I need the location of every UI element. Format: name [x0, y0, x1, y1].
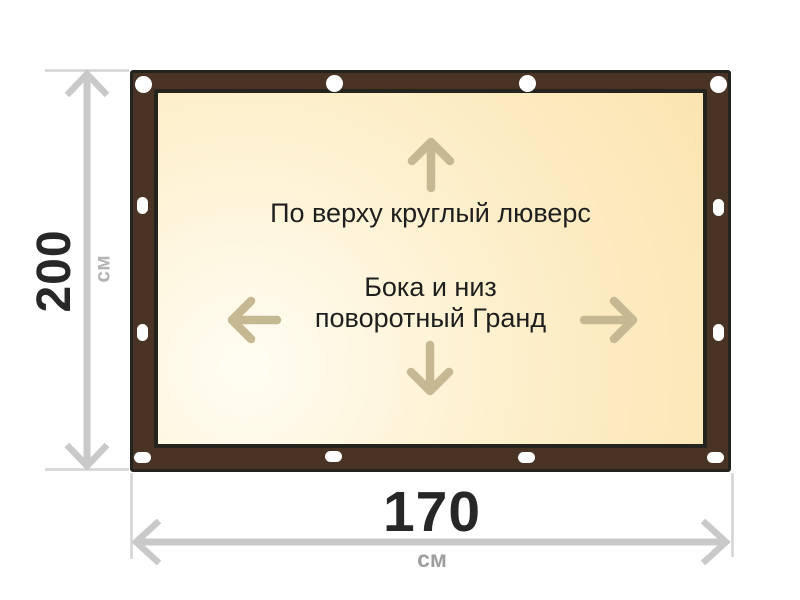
- banner-size-diagram: По верху круглый люверс Бока и низ повор…: [0, 0, 800, 600]
- grommet-oval-icon: [713, 324, 724, 341]
- sides-bottom-note-line2: поворотный Гранд: [158, 303, 703, 334]
- grommet-oval-icon: [137, 197, 148, 214]
- sides-bottom-note-line1: Бока и низ: [158, 272, 703, 303]
- grommet-oval-icon: [707, 452, 724, 463]
- grommet-round-icon: [135, 76, 152, 93]
- top-grommet-note: По верху круглый люверс: [158, 198, 703, 229]
- grommet-oval-icon: [137, 324, 148, 341]
- grommet-oval-icon: [134, 452, 151, 463]
- width-value-label: 170: [133, 484, 731, 541]
- sides-bottom-note: Бока и низ поворотный Гранд: [158, 272, 703, 334]
- width-unit-label: см: [133, 548, 731, 571]
- grommet-oval-icon: [325, 451, 342, 462]
- grommet-oval-icon: [518, 452, 535, 463]
- grommet-round-icon: [326, 75, 343, 92]
- grommet-oval-icon: [713, 199, 724, 216]
- height-unit-label: см: [93, 255, 114, 282]
- grommet-round-icon: [519, 75, 536, 92]
- banner-print-area: [154, 89, 707, 448]
- height-value-label: 200: [31, 229, 79, 312]
- grommet-round-icon: [710, 76, 727, 93]
